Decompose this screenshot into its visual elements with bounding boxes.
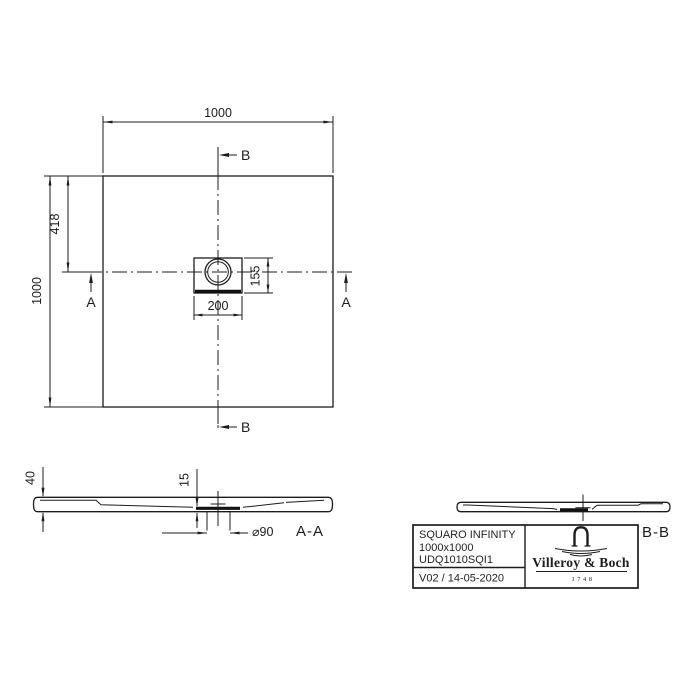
title-block: SQUARO INFINITY 1000x1000 UDQ1010SQI1 V0… bbox=[413, 525, 638, 588]
section-aa-profile bbox=[34, 497, 333, 511]
section-aa-view: 40 15 ⌀90 A-A bbox=[24, 467, 333, 540]
section-marker-a-left: A bbox=[86, 273, 96, 310]
dim-label-aa-height: 40 bbox=[24, 471, 38, 485]
dimension-drain-box-width: 200 bbox=[194, 296, 242, 320]
dim-label-top-width: 1000 bbox=[204, 106, 232, 120]
section-bb-title: B-B bbox=[642, 524, 670, 541]
brand-name: Villeroy & Boch bbox=[532, 555, 630, 570]
brand-founded-year: 1748 bbox=[572, 576, 595, 583]
dimension-drain-from-top: 418 bbox=[48, 176, 99, 272]
plan-view: 1000 1000 418 155 bbox=[30, 106, 352, 435]
section-marker-a-left-label: A bbox=[86, 294, 96, 310]
section-marker-a-right: A bbox=[341, 273, 351, 310]
dimension-aa-drain-diameter: ⌀90 bbox=[162, 525, 273, 539]
title-block-dimensions: 1000x1000 bbox=[419, 542, 473, 554]
section-marker-b-top: B bbox=[218, 147, 250, 176]
section-aa-title: A-A bbox=[296, 523, 324, 540]
dim-label-aa-drain-diameter: ⌀90 bbox=[252, 525, 273, 539]
section-marker-b-top-label: B bbox=[241, 147, 250, 163]
dim-label-drain-box-height: 155 bbox=[249, 266, 263, 287]
section-marker-b-bottom-label: B bbox=[241, 419, 250, 435]
dim-label-left-height: 1000 bbox=[30, 277, 44, 305]
section-aa-inner-lines bbox=[40, 500, 324, 507]
dim-label-aa-base-thickness: 15 bbox=[178, 473, 192, 487]
section-bb-centerline bbox=[576, 495, 591, 522]
dim-label-drain-box-width: 200 bbox=[208, 299, 229, 313]
dimension-left-height: 1000 bbox=[30, 176, 103, 407]
drawing-svg: 1000 1000 418 155 bbox=[0, 0, 700, 700]
title-block-product-line: SQUARO INFINITY bbox=[419, 529, 516, 541]
dimension-drain-box-height: 155 bbox=[244, 258, 273, 293]
section-marker-a-right-label: A bbox=[341, 294, 351, 310]
title-block-version-date: V02 / 14-05-2020 bbox=[419, 573, 504, 585]
dimension-aa-base-thickness: 15 bbox=[178, 469, 199, 528]
title-block-article-number: UDQ1010SQI1 bbox=[419, 554, 493, 566]
dim-label-drain-from-top: 418 bbox=[48, 214, 62, 235]
technical-drawing-sheet: 1000 1000 418 155 bbox=[0, 0, 700, 700]
section-marker-b-bottom: B bbox=[218, 407, 250, 435]
